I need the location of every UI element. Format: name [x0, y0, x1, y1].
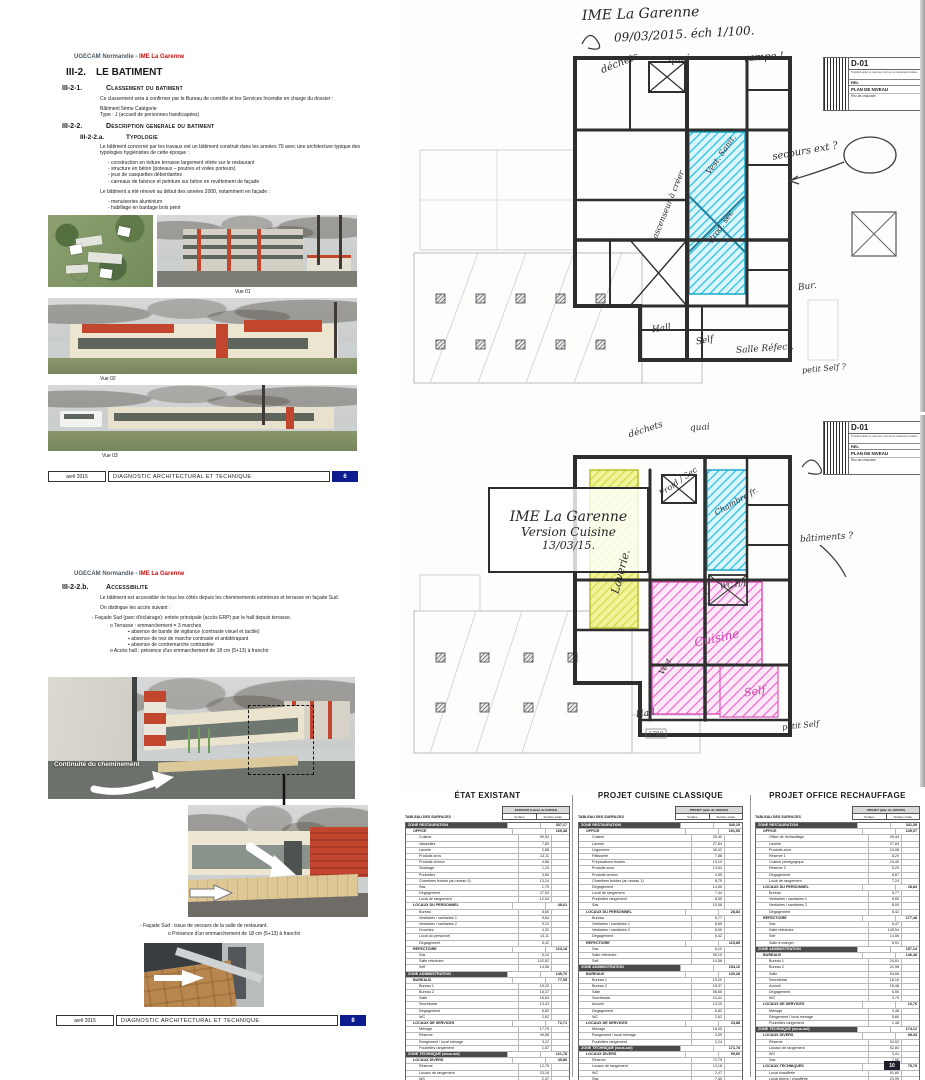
row-label: Bureau 2	[406, 990, 519, 995]
row-label: Dégagement	[406, 941, 519, 946]
footer-page-number: 6	[332, 471, 358, 482]
row-label: Local chaufferie	[756, 1071, 869, 1076]
row-surface: 6,42	[692, 934, 725, 939]
row-label: Sas	[406, 885, 519, 890]
plan-sketch-version-cuisine: IME La Garenne Version Cuisine 13/03/15.…	[400, 415, 925, 787]
row-surface: 54,66	[869, 972, 902, 977]
row-surface-totale: 340,19	[714, 823, 742, 828]
row-surface-totale	[902, 972, 919, 977]
row-surface	[858, 947, 891, 952]
row-label: Dégagement	[756, 910, 869, 915]
row-label: Bureau	[756, 891, 869, 896]
subsection-title: III-2-2.Description generale du batiment	[62, 123, 370, 130]
row-label: LOCAUX DU PERSONNEL	[756, 885, 863, 890]
title-block: D-01 Transformation et mise aux normes d…	[823, 421, 921, 475]
row-surface	[686, 1021, 719, 1026]
row-surface: 19,20	[519, 984, 552, 989]
row-surface: 72,75	[692, 1058, 725, 1063]
row-surface: 12,75	[519, 1064, 552, 1069]
row-label: ZONE ADMINISTRATION	[406, 972, 508, 977]
row-surface-totale	[552, 922, 569, 927]
row-label: Salle	[579, 990, 692, 995]
row-surface: 99,19	[692, 953, 725, 958]
row-label: Local de rangement	[579, 891, 692, 896]
row-surface-totale	[552, 916, 569, 921]
row-surface: 13,84	[692, 866, 725, 871]
row-surface-totale	[725, 891, 742, 896]
row-label: Dégagement	[756, 990, 869, 995]
row-label: ZONE RESTAURATION	[756, 823, 858, 828]
table-column-header: EXISTANT (relevé du 04/2013)SurfaceSurfa…	[502, 806, 570, 820]
list-item: Présence d'un emmarchement de 18 cm (5+1…	[168, 931, 300, 937]
row-surface-totale	[902, 959, 919, 964]
row-label: Salle réfectoire	[406, 959, 519, 964]
row-surface-totale	[902, 866, 919, 871]
row-label: Produits terreux	[579, 873, 692, 878]
row-label: BUREAUX	[406, 978, 513, 983]
project-title: Transformation et mise aux normes du res…	[849, 70, 920, 80]
row-surface-totale	[552, 866, 569, 871]
row-surface	[513, 1021, 546, 1026]
row-label: Vaisselles	[406, 842, 519, 847]
row-label: Réserve 1	[756, 854, 869, 859]
detail-highlight-box	[248, 705, 314, 775]
row-label: LOCAUX DE SERVICES	[756, 1002, 863, 1007]
row-surface: 5,80	[869, 1015, 902, 1020]
row-surface: 8,00	[692, 928, 725, 933]
list-item: Façade Sud (parc d'éclairage): entrée pr…	[92, 615, 360, 621]
row-surface: 13,24	[519, 879, 552, 884]
row-surface-totale	[725, 996, 742, 1001]
table-projet-cuisine-classique: PROJET CUISINE CLASSIQUETABLEAU DES SURF…	[578, 791, 743, 1080]
photo-caption: Vue 01	[235, 289, 370, 295]
row-surface-totale	[902, 1071, 919, 1076]
row-surface-totale	[725, 1064, 742, 1069]
title-block: D-01 Transformation et mise aux normes d…	[823, 57, 921, 111]
row-surface: 2,62	[692, 1015, 725, 1020]
row-surface-totale	[552, 873, 569, 878]
row-label: Vestiaires / sanitaires 1	[406, 916, 519, 921]
row-surface-totale	[552, 1002, 569, 1007]
row-label: Poubelles rangement	[406, 1046, 519, 1051]
row-label: Cuisine pédagogique	[756, 860, 869, 865]
row-surface: 34,52	[869, 1040, 902, 1045]
row-label: OFFICE	[756, 829, 863, 834]
photo-threshold-detail	[144, 943, 264, 1007]
row-surface	[513, 829, 546, 834]
row-label: Secrétariat	[579, 996, 692, 1001]
row-surface	[508, 972, 541, 977]
row-label: ZONE RESTAURATION	[406, 823, 508, 828]
row-surface-totale	[552, 959, 569, 964]
row-surface-totale	[552, 965, 569, 970]
row-surface: 18,37	[692, 984, 725, 989]
row-surface-totale	[902, 873, 919, 878]
row-surface: 6,10	[692, 947, 725, 952]
document-header: UGECAM Normandie - IME La Garenne	[74, 571, 370, 577]
row-label: Produits secs	[406, 854, 519, 859]
row-label: Bureau	[406, 910, 519, 915]
row-surface-totale	[552, 860, 569, 865]
row-surface: 5,80	[519, 910, 552, 915]
row-surface-totale: 177,48	[896, 916, 919, 921]
row-surface	[508, 1052, 541, 1057]
row-surface: 3,47	[519, 1040, 552, 1045]
row-surface-totale	[902, 996, 919, 1001]
photo-annotation-label: Continuité du cheminement	[54, 761, 140, 768]
row-surface-totale: 341,39	[891, 823, 919, 828]
row-surface-totale: 135,07	[896, 829, 919, 834]
row-surface-totale	[725, 866, 742, 871]
row-surface: 8,75	[692, 879, 725, 884]
row-label: Locaux de rangement	[579, 1064, 692, 1069]
row-label: Bureau 1	[406, 984, 519, 989]
row-label: ZONE TECHNIQUE (sous-sol)	[406, 1052, 508, 1057]
row-surface-totale: 28,84	[719, 910, 742, 915]
row-label: Laverie	[756, 842, 869, 847]
row-surface-totale	[902, 1040, 919, 1045]
paragraph: Le bâtiment a été rénové au début des an…	[100, 189, 360, 195]
column-surface: Surface	[676, 814, 710, 819]
row-surface-totale	[725, 1015, 742, 1020]
row-label: LOCAUX TECHNIQUES	[756, 1064, 863, 1069]
column-surface: Surface	[853, 814, 887, 819]
row-surface: 13,11	[519, 854, 552, 859]
row-surface	[686, 1052, 719, 1057]
row-surface-totale	[902, 835, 919, 840]
list-item: - habillage en bardage bois peint	[108, 205, 360, 211]
row-surface-totale	[552, 928, 569, 933]
row-surface-totale: 10,76	[896, 1002, 919, 1007]
row-surface-totale	[552, 848, 569, 853]
row-surface: 56,66	[692, 990, 725, 995]
row-label: Vestiaires / sanitaires 2	[756, 903, 869, 908]
row-label: Local du personnel	[406, 934, 519, 939]
row-surface-totale: 191,50	[719, 829, 742, 834]
row-surface-totale	[902, 928, 919, 933]
row-surface-totale	[902, 1052, 919, 1057]
table-divider	[572, 795, 573, 1077]
row-label: Office de réchauffage	[756, 835, 869, 840]
paragraph: Le bâtiment concerné par les travaux est…	[100, 144, 360, 156]
row-surface: 18,37	[519, 990, 552, 995]
row-surface-totale	[552, 1027, 569, 1032]
row-label: Produits secs	[579, 866, 692, 871]
row-surface: 8,65	[692, 922, 725, 927]
footer-page-number: 8	[340, 1015, 366, 1026]
row-label: Bureau 2	[579, 984, 692, 989]
row-surface: 13,20	[692, 1002, 725, 1007]
row-surface: 2,62	[519, 1015, 552, 1020]
row-label: Poubelles rangement	[756, 1021, 869, 1026]
row-surface: 13,19	[692, 860, 725, 865]
logo-barcode	[824, 422, 849, 474]
row-surface-totale	[552, 1040, 569, 1045]
row-surface-totale	[552, 1046, 569, 1051]
column-group-label: PROJET (plan du 13/03/15)	[676, 807, 742, 814]
row-surface: 1,87	[519, 1046, 552, 1051]
row-surface-totale	[725, 916, 742, 921]
row-label: LOCAUX DU PERSONNEL	[579, 910, 686, 915]
row-surface-totale: 72,71	[546, 1021, 569, 1026]
row-surface-totale: 149,76	[541, 972, 569, 977]
row-surface: 3,60	[519, 873, 552, 878]
row-surface-totale	[902, 910, 919, 915]
row-surface-totale: 95,80	[719, 1052, 742, 1057]
table-body: ZONE RESTAURATION340,19OFFICE191,50Cuisi…	[578, 822, 743, 1080]
photo-facade-detail	[188, 805, 368, 917]
row-surface: 4,32	[519, 928, 552, 933]
row-label: Self	[579, 959, 692, 964]
row-surface: 24,08	[869, 848, 902, 853]
row-surface-totale	[902, 1058, 919, 1063]
row-surface: 4,55	[692, 873, 725, 878]
row-surface-totale	[725, 959, 742, 964]
table-body: ZONE RESTAURATION341,39OFFICE135,07Offic…	[755, 822, 920, 1080]
row-surface-totale	[552, 941, 569, 946]
row-label: WC	[756, 1052, 869, 1057]
row-surface-totale	[902, 1009, 919, 1014]
column-group-label: PROJET (plan du 13/03/15)	[853, 807, 919, 814]
row-label: Dégagement	[406, 891, 519, 896]
row-surface: 13,41	[692, 996, 725, 1001]
row-label: ZONE TECHNIQUE (sous-sol)	[579, 1046, 681, 1051]
row-surface: 6,10	[519, 953, 552, 958]
row-surface-totale	[902, 1046, 919, 1051]
row-surface-totale	[902, 842, 919, 847]
row-surface: 27,84	[692, 842, 725, 847]
row-label: Sas	[756, 1058, 869, 1063]
row-label: Dégagement	[579, 934, 692, 939]
row-surface	[681, 965, 714, 970]
section-title: III-2.LE BATIMENT	[66, 67, 370, 78]
row-surface: 7,44	[692, 891, 725, 896]
row-label: WC	[579, 1071, 692, 1076]
row-label: ZONE ADMINISTRATION	[756, 947, 858, 952]
row-surface: 12,54	[519, 897, 552, 902]
row-label: Dégagement	[579, 1009, 692, 1014]
row-label: Accueil	[756, 984, 869, 989]
row-surface: 18,16	[869, 978, 902, 983]
row-label: Réserve	[756, 1040, 869, 1045]
row-surface: 16,48	[869, 984, 902, 989]
row-surface: 2,24	[692, 1040, 725, 1045]
row-label: Cuisine	[579, 835, 692, 840]
row-surface-totale	[902, 990, 919, 995]
column-labels: SurfaceSurface totale	[853, 814, 919, 819]
table-surfaces-label: TABLEAU DES SURFACES	[755, 815, 801, 820]
row-surface-totale	[902, 984, 919, 989]
subsection-title: III-2-1.Classement du batiment	[62, 85, 370, 92]
row-label: Produits secs	[756, 848, 869, 853]
row-surface-totale	[902, 1015, 919, 1020]
curved-arrow-icon	[88, 769, 178, 795]
row-surface	[681, 1046, 714, 1051]
row-surface: 6,82	[519, 1009, 552, 1014]
row-surface: 6,47	[869, 922, 902, 927]
row-surface: 5,20	[869, 866, 902, 871]
row-surface-totale	[552, 854, 569, 859]
row-surface-totale	[725, 1027, 742, 1032]
row-surface: 90,54	[519, 835, 552, 840]
row-label: Salle réfectoire	[579, 953, 692, 958]
list-item: - carreaux de faïence et peinture sur bé…	[108, 179, 360, 185]
row-surface: 4,86	[519, 860, 552, 865]
row-surface: 1,75	[519, 885, 552, 890]
row-label: Accueil	[579, 1002, 692, 1007]
subsubsection-title: III-2-2.a.Typologie	[80, 134, 370, 141]
row-surface: 7,88	[692, 854, 725, 859]
row-label: Vestiaires / sanitaires 2	[579, 928, 692, 933]
paragraph: Le bâtiment est accessible de tous les c…	[100, 595, 360, 601]
row-surface-totale	[552, 953, 569, 958]
site-name: IME La Garenne	[139, 54, 184, 60]
row-label: Salle réfectoire	[756, 928, 869, 933]
row-surface: 29,44	[869, 835, 902, 840]
row-surface	[858, 1027, 891, 1032]
row-label: Local de rangement	[406, 897, 519, 902]
row-surface-totale	[552, 897, 569, 902]
row-surface-totale	[725, 978, 742, 983]
row-surface: 102,52	[519, 959, 552, 964]
row-surface	[863, 1033, 896, 1038]
row-surface: 6,42	[519, 941, 552, 946]
row-label: Secrétariat	[756, 978, 869, 983]
row-label: Bureau	[579, 916, 692, 921]
handwritten-label: 1790	[648, 731, 663, 738]
row-surface-totale	[552, 1071, 569, 1076]
row-surface: 149,54	[869, 928, 902, 933]
row-surface-totale: 119,85	[719, 941, 742, 946]
row-surface: 17,79	[519, 1027, 552, 1032]
table-body: ZONE RESTAURATION337,17OFFICE165,38Cuisi…	[405, 822, 570, 1080]
row-label: Pâtisserie	[579, 854, 692, 859]
row-surface-totale	[902, 978, 919, 983]
row-surface-totale: 77,05	[546, 978, 569, 983]
row-surface: 19,20	[692, 978, 725, 983]
row-surface-totale	[725, 1058, 742, 1063]
row-label: Chambres froides (au niveau 0)	[406, 879, 519, 884]
row-surface-totale	[552, 891, 569, 896]
drawing-level: Rez-de-chaussée	[849, 458, 920, 462]
row-surface-totale	[902, 1021, 919, 1026]
row-label: Poubelles rangement	[579, 897, 692, 902]
drawing-title: PLAN DE NIVEAU	[849, 450, 920, 458]
row-surface: 24,40	[869, 860, 902, 865]
row-surface: 5,77	[692, 916, 725, 921]
row-surface: 5,77	[869, 891, 902, 896]
row-surface: 6,82	[692, 1009, 725, 1014]
row-label: Réserve 2	[756, 866, 869, 871]
bullet-list: - menuiseries aluminium- habillage en ba…	[108, 199, 360, 211]
row-surface: 3,59	[692, 1033, 725, 1038]
row-label: Réserve	[406, 1033, 519, 1038]
table-header: TABLEAU DES SURFACESEXISTANT (relevé du …	[405, 806, 570, 820]
row-surface: 3,41	[869, 1052, 902, 1057]
photo-row	[48, 215, 370, 287]
row-label: Sas	[579, 947, 692, 952]
row-label: Salle	[756, 972, 869, 977]
table-surfaces-label: TABLEAU DES SURFACES	[405, 815, 451, 820]
table-column-header: PROJET (plan du 13/03/15)SurfaceSurface …	[852, 806, 920, 820]
row-surface: 6,50	[869, 990, 902, 995]
row-surface	[513, 947, 546, 952]
row-label: Vestiaires / sanitaires 2	[406, 922, 519, 927]
photo-caption: Vue 02	[100, 376, 370, 382]
document-header: UGECAM Normandie - IME La Garenne	[74, 54, 370, 60]
row-surface: 13,41	[519, 1002, 552, 1007]
drawing-level: Rez-de-chaussée	[849, 94, 920, 98]
row-surface-totale	[725, 860, 742, 865]
row-label: Préparations froides	[579, 860, 692, 865]
row-surface	[686, 829, 719, 834]
row-label: Chambres froides (au niveau 1)	[579, 879, 692, 884]
row-label: REFECTOIRE	[756, 916, 863, 921]
row-surface: 39,40	[692, 835, 725, 840]
row-surface-totale	[902, 854, 919, 859]
outline-arrow-icon	[188, 883, 238, 903]
table-title: PROJET OFFICE RECHAUFFAGE	[755, 791, 920, 800]
row-label: BUREAUX	[756, 953, 863, 958]
document-page-6: UGECAM Normandie - IME La Garenne III-2.…	[40, 46, 370, 516]
column-surface-totale: Surface totale	[887, 814, 920, 819]
row-surface-totale	[902, 965, 919, 970]
row-surface: 52,84	[869, 1046, 902, 1051]
row-surface-totale	[725, 1009, 742, 1014]
drawing-number: D-01	[849, 58, 920, 70]
row-surface	[513, 1058, 546, 1063]
footer-date: avril 2015	[48, 471, 106, 482]
paragraph: Ce classement sera à confirmer par le Bu…	[100, 96, 360, 102]
row-surface: 8,65	[869, 897, 902, 902]
row-label: Douches	[406, 928, 519, 933]
row-surface-totale	[725, 1033, 742, 1038]
row-surface-totale	[725, 903, 742, 908]
row-surface-totale: 154,16	[714, 965, 742, 970]
row-surface-totale	[725, 1071, 742, 1076]
row-surface-totale	[725, 1040, 742, 1045]
row-surface: 14,56	[869, 934, 902, 939]
table-surfaces-label: TABLEAU DES SURFACES	[578, 815, 624, 820]
row-surface: 16,63	[519, 996, 552, 1001]
row-surface: 9,84	[519, 916, 552, 921]
row-surface: 1,48	[869, 1021, 902, 1026]
row-surface: 7,60	[519, 842, 552, 847]
row-surface-totale	[552, 842, 569, 847]
row-surface	[858, 823, 891, 828]
row-label: OFFICE	[406, 829, 513, 834]
row-surface: 30,42	[692, 848, 725, 853]
row-surface-totale	[552, 885, 569, 890]
row-surface-totale	[725, 848, 742, 853]
row-surface-totale	[902, 891, 919, 896]
row-label: Sas	[579, 903, 692, 908]
page-footer: avril 2015 DIAGNOSTIC ARCHITECTURAL ET T…	[56, 1015, 366, 1026]
row-surface-totale	[902, 934, 919, 939]
row-label: Vestiaires / sanitaires 1	[756, 897, 869, 902]
row-surface-totale	[725, 947, 742, 952]
row-surface-totale	[552, 910, 569, 915]
site-name: IME La Garenne	[139, 571, 184, 577]
row-surface-totale	[725, 854, 742, 859]
row-surface-totale	[552, 984, 569, 989]
table-title: ÉTAT EXISTANT	[405, 791, 570, 800]
row-surface: 1,20	[519, 866, 552, 871]
row-surface: 15,08	[692, 903, 725, 908]
row-surface: 24,81	[869, 959, 902, 964]
row-label: Rangement / local ménage	[579, 1033, 692, 1038]
row-surface-totale: 174,12	[891, 1027, 919, 1032]
